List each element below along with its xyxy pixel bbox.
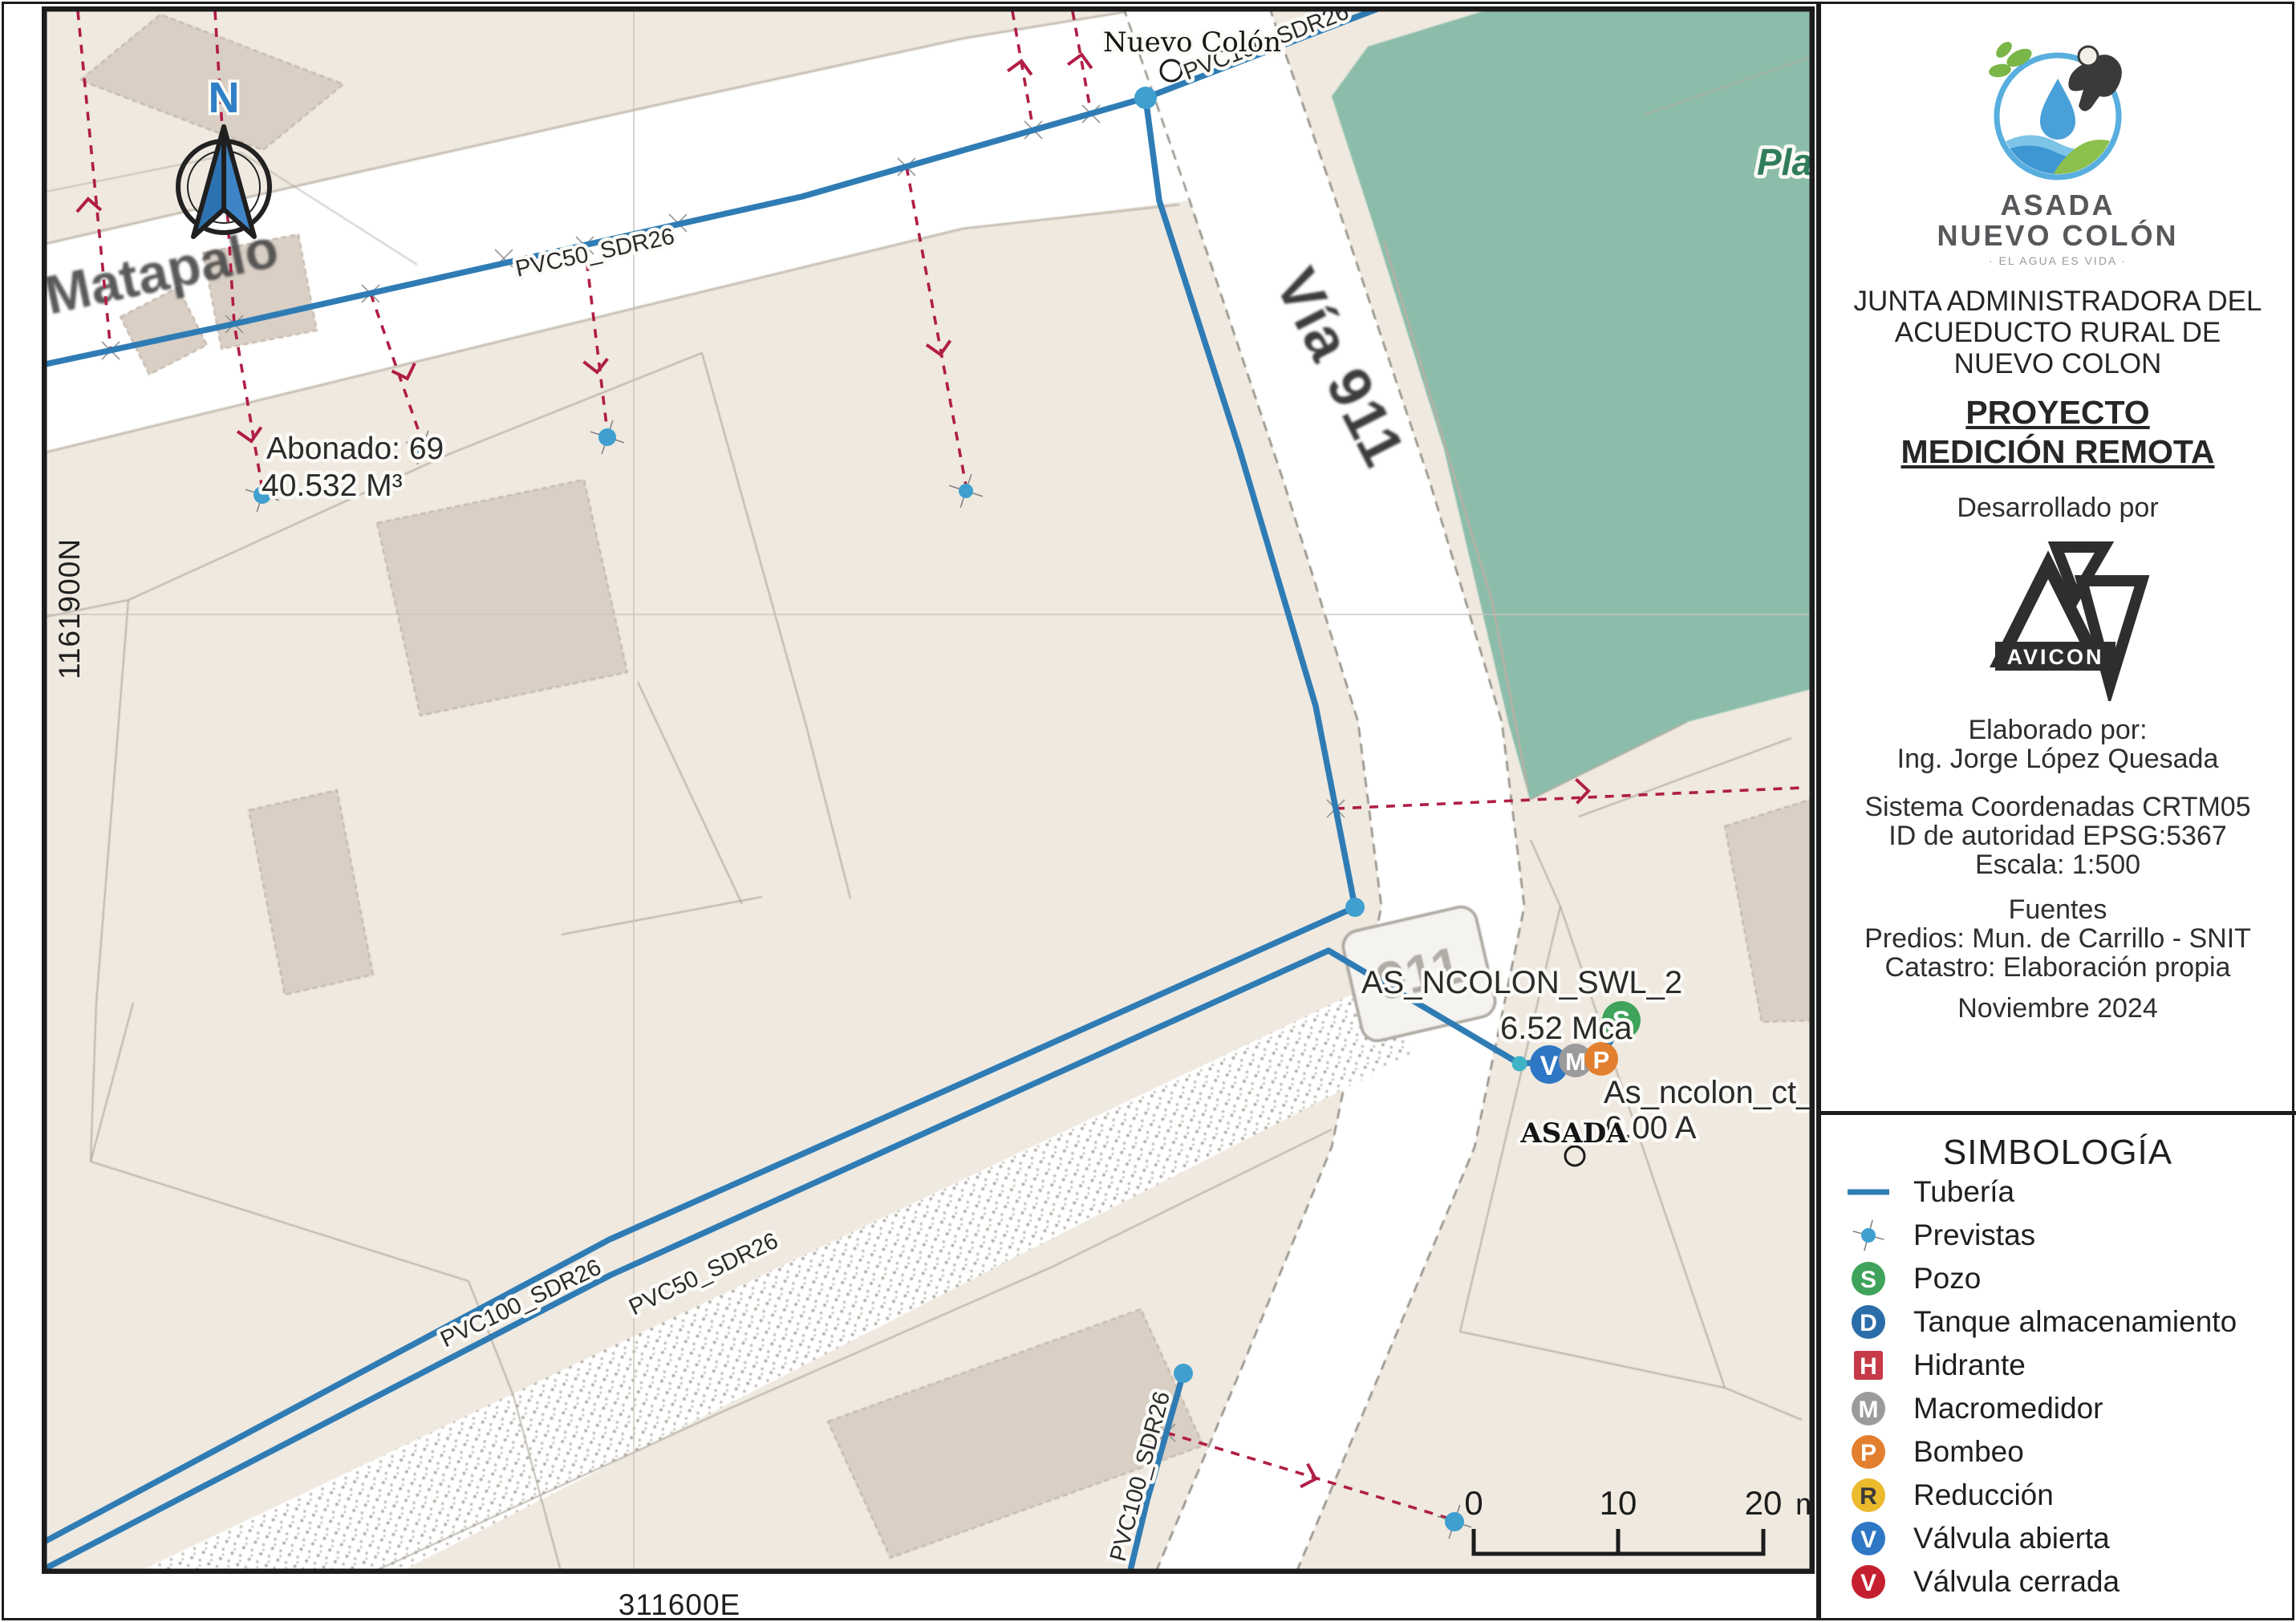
legend-item-label: Válvula cerrada [1913,1565,2120,1599]
node-swl-label: AS_NCOLON_SWL_2 [1361,965,1682,1000]
pipe-line-icon [1845,1171,1892,1213]
legend-item-label: Reducción [1913,1478,2054,1512]
project-title-line2: MEDICIÓN REMOTA [1900,433,2214,470]
open-valve-icon: V [1845,1518,1892,1559]
legend-item-label: Tubería [1913,1175,2014,1209]
storage-tank-icon: D [1845,1301,1892,1343]
legend-item-label: Bombeo [1913,1435,2024,1469]
pipe-vertex-node [1345,898,1365,917]
prevista-teal-dot [1512,1056,1527,1072]
crs-line: Escala: 1:500 [1823,850,2293,879]
date-label: Noviembre 2024 [1823,995,2293,1022]
legend-title: SIMBOLOGÍA [1823,1133,2293,1173]
legend-item-label: Macromedidor [1913,1392,2103,1425]
map-canvas: Matapalo Vía 911 911 [42,6,1815,1574]
valve-letter: V [1540,1051,1559,1081]
pump-icon: P [1845,1431,1892,1473]
well-icon: S [1845,1258,1892,1300]
project-title-line1: PROYECTO [1965,394,2149,431]
logo-tagline: · EL AGUA ES VIDA · [1989,254,2127,267]
logo-org-line1: ASADA [2000,189,2115,221]
scale-tick-10: 10 [1600,1484,1637,1522]
legend-item: SPozo [1823,1257,2293,1300]
org-title-line: JUNTA ADMINISTRADORA DEL [1823,286,2293,317]
org-title: JUNTA ADMINISTRADORA DEL ACUEDUCTO RURAL… [1823,286,2293,379]
legend-symbol-letter: D [1860,1310,1877,1336]
legend-item: DTanque almacenamiento [1823,1300,2293,1344]
project-title: PROYECTO MEDICIÓN REMOTA [1823,393,2293,472]
org-title-line: NUEVO COLON [1823,348,2293,379]
sources-line: Catastro: Elaboración propia [1823,953,2293,982]
legend: TuberíaPrevistasSPozoDTanque almacenamie… [1823,1170,2293,1604]
legend-item-label: Tanque almacenamiento [1913,1305,2237,1339]
avicon-logo: AVICON [1961,533,2154,701]
macro-meter-icon: M [1845,1388,1892,1429]
sources-line: Predios: Mun. de Carrillo - SNIT [1823,924,2293,953]
legend-item: VVálvula cerrada [1823,1560,2293,1604]
node-ct-label: As_ncolon_ct_1 [1604,1075,1815,1110]
grid-label-north: 1161900N [53,525,87,693]
prevista-dot-icon [1845,1214,1892,1256]
elaborated-by: Elaborado por: Ing. Jorge López Quesada [1823,716,2293,773]
node-swl-value: 6.52 Mca [1500,1011,1633,1046]
scale-tick-0: 0 [1464,1484,1483,1522]
scale-tick-20: 20 [1745,1484,1783,1522]
pipe-junction-node [1134,87,1157,109]
town-label-nuevo-colon: Nuevo Colón [1103,26,1281,59]
legend-item: Previstas [1823,1214,2293,1257]
north-arrow-letter: N [209,74,240,122]
town-label-asada: ASADA [1519,1117,1628,1150]
legend-symbol-letter: R [1860,1483,1877,1510]
legend-symbol-letter: H [1860,1353,1877,1380]
grid-label-east: 311600E [567,1588,792,1622]
legend-symbol-letter: P [1860,1440,1876,1466]
hydrant-icon: H [1845,1344,1892,1386]
closed-valve-icon: V [1845,1561,1892,1603]
macromedidor-letter: M [1565,1048,1586,1076]
legend-divider [1816,1111,2296,1115]
map-svg: Matapalo Vía 911 911 [42,6,1815,1574]
title-panel: ASADA NUEVO COLÓN · EL AGUA ES VIDA · JU… [1823,3,2293,1619]
legend-item-label: Previstas [1913,1219,2035,1252]
legend-symbol-letter: S [1860,1267,1876,1293]
elaborated-line: Ing. Jorge López Quesada [1823,744,2293,773]
legend-item: MMacromedidor [1823,1387,2293,1430]
legend-item-label: Hidrante [1913,1348,2026,1382]
crs-info: Sistema Coordenadas CRTM05 ID de autorid… [1823,793,2293,879]
legend-item-label: Pozo [1913,1262,1981,1296]
legend-item: RReducción [1823,1474,2293,1517]
legend-item: PBombeo [1823,1430,2293,1474]
asada-logo-icon [1988,39,2122,180]
sources-line: Fuentes [1823,895,2293,924]
legend-item: HHidrante [1823,1344,2293,1387]
abonado-label: Abonado: 69 [266,432,444,466]
pipe-endpoint-node [1174,1364,1193,1383]
logo-org-line2: NUEVO COLÓN [1937,218,2178,252]
legend-symbol-letter: V [1860,1570,1876,1596]
map-sheet: Matapalo Vía 911 911 [0,0,2296,1622]
asada-logo: ASADA NUEVO COLÓN · EL AGUA ES VIDA · [1929,32,2186,273]
avicon-wordmark: AVICON [2006,645,2103,669]
legend-symbol-letter: M [1859,1397,1879,1423]
volume-label: 40.532 M³ [262,468,403,503]
legend-item: VVálvula abierta [1823,1517,2293,1560]
elaborated-line: Elaborado por: [1823,716,2293,744]
pump-letter: P [1593,1046,1610,1074]
reducer-icon: R [1845,1474,1892,1516]
org-title-line: ACUEDUCTO RURAL DE [1823,317,2293,348]
sources-info: Fuentes Predios: Mun. de Carrillo - SNIT… [1823,895,2293,982]
park-label: Pla [1757,141,1812,183]
crs-line: Sistema Coordenadas CRTM05 [1823,793,2293,821]
developed-by-label: Desarrollado por [1823,494,2293,521]
legend-item: Tubería [1823,1170,2293,1214]
crs-line: ID de autoridad EPSG:5367 [1823,821,2293,850]
panel-border [1816,3,1821,1619]
legend-symbol-letter: V [1860,1527,1876,1553]
legend-item-label: Válvula abierta [1913,1522,2110,1555]
